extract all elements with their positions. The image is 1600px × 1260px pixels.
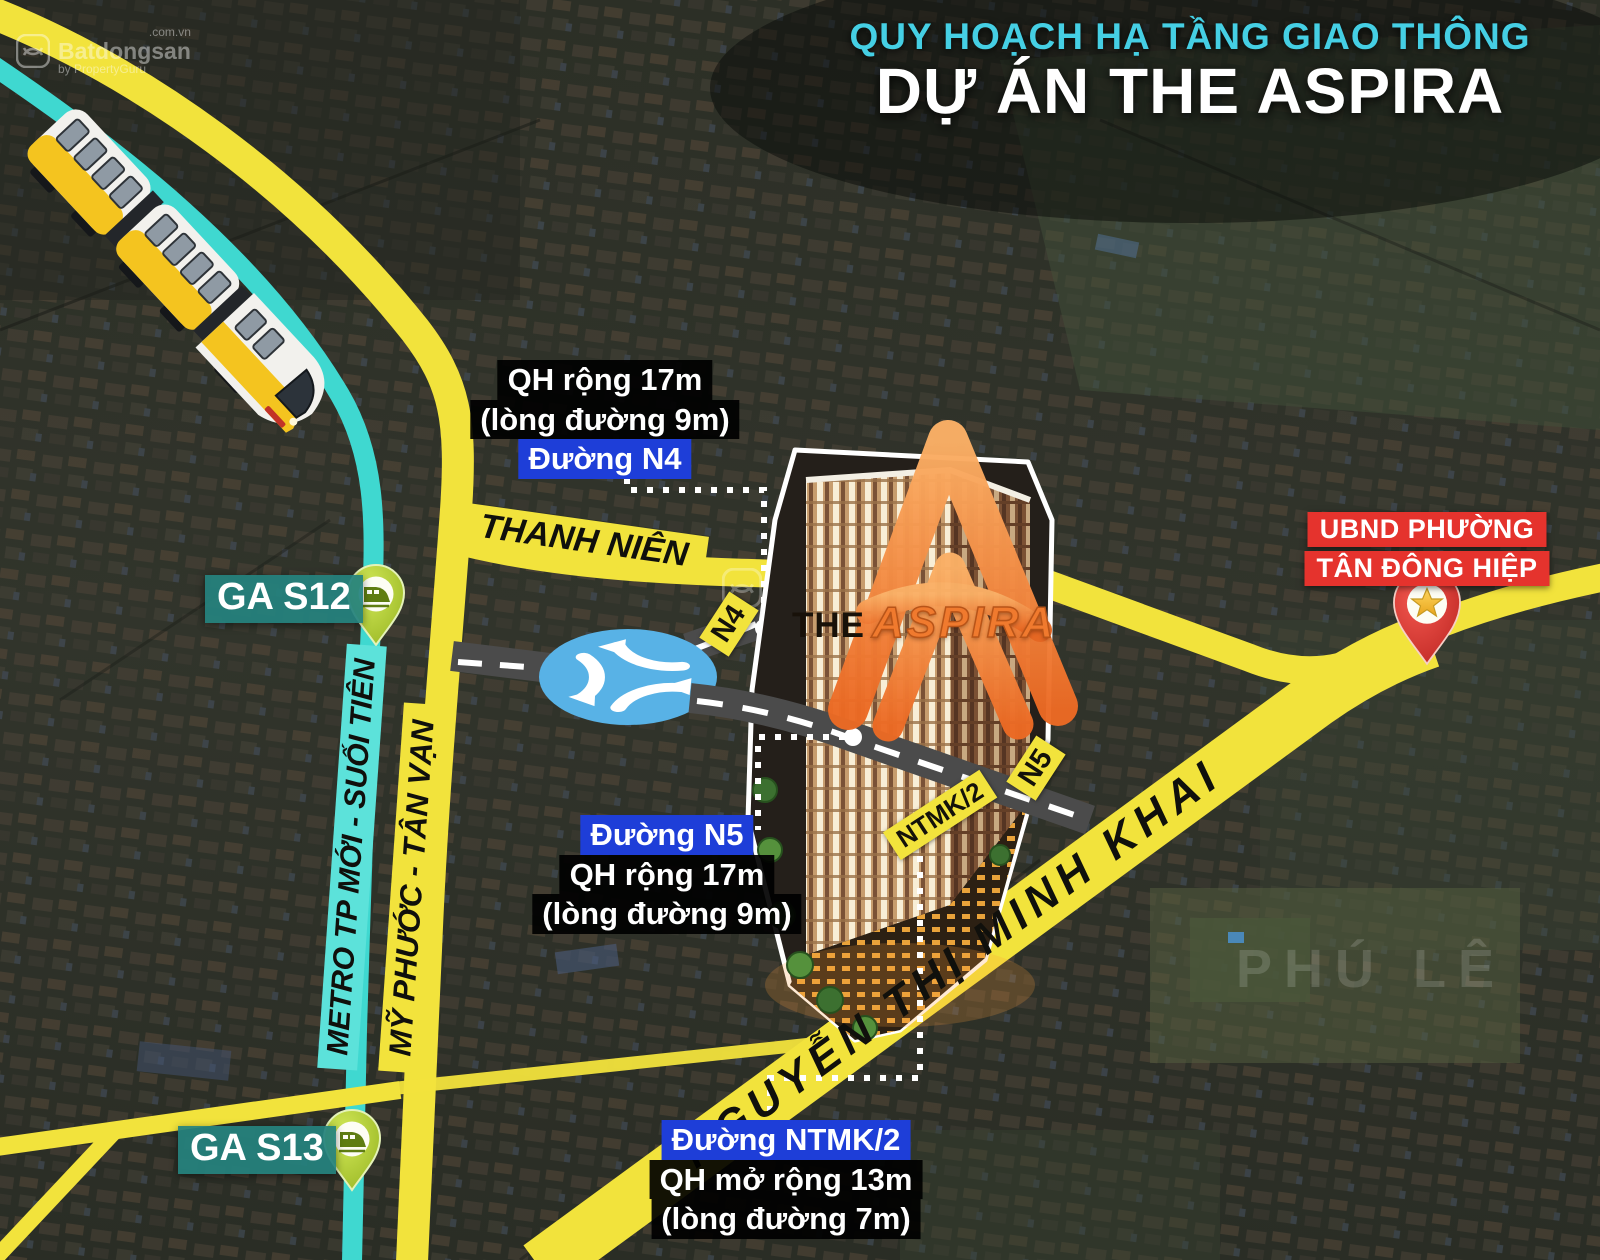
callout-n5-road: Đường N5 — [581, 815, 754, 855]
callout-n4: QH rộng 17m (lòng đường 9m) Đường N4 — [470, 360, 739, 479]
title-line1: QUY HOẠCH HẠ TẦNG GIAO THÔNG — [800, 16, 1580, 58]
callout-ntmk2: Đường NTMK/2 QH mở rộng 13m (lòng đường … — [650, 1120, 923, 1239]
road-label-thanh-nien: THANH NIÊN — [459, 503, 708, 580]
callout-n5: Đường N5 QH rộng 17m (lòng đường 9m) — [532, 815, 801, 934]
road-tag-n4: N4 — [699, 591, 758, 656]
callout-n5-lane: (lòng đường 9m) — [532, 894, 801, 934]
road-label-my-phuoc-tan-van: MỸ PHƯỚC - TÂN VẠN — [378, 703, 446, 1074]
road-tag-n5: N5 — [1006, 735, 1065, 800]
callout-ntmk2-width: QH mở rộng 13m — [650, 1160, 923, 1200]
aspira-wordmark: THE ASPIRA — [792, 598, 1056, 648]
callout-ntmk2-lane: (lòng đường 7m) — [651, 1199, 920, 1239]
callout-n4-lane: (lòng đường 9m) — [470, 400, 739, 440]
title-line2: DỰ ÁN THE ASPIRA — [800, 58, 1580, 125]
callout-n4-width: QH rộng 17m — [498, 360, 713, 400]
station-label-ga-s12: GA S12 — [205, 575, 363, 623]
callout-ntmk2-road: Đường NTMK/2 — [662, 1120, 911, 1160]
metro-line-label: METRO TP MỚI - SUỐI TIÊN — [317, 643, 387, 1070]
wordmark-aspira: ASPIRA — [872, 598, 1056, 648]
corner-watermark: PHÚ LÊ — [1236, 938, 1506, 1000]
road-tag-ntmk2: NTMK/2 — [883, 770, 997, 860]
page-title: QUY HOẠCH HẠ TẦNG GIAO THÔNG DỰ ÁN THE A… — [800, 16, 1580, 125]
ubnd-line1: UBND PHƯỜNG — [1308, 512, 1546, 547]
station-label-ga-s13: GA S13 — [178, 1126, 336, 1174]
map-infographic: .com.vn Batdongsan by PropertyGuru Batdo… — [0, 0, 1600, 1260]
labels-layer: QUY HOẠCH HẠ TẦNG GIAO THÔNG DỰ ÁN THE A… — [0, 0, 1600, 1260]
callout-n5-width: QH rộng 17m — [560, 855, 775, 895]
wordmark-the: THE — [792, 606, 865, 646]
ubnd-label: UBND PHƯỜNG TÂN ĐÔNG HIỆP — [1304, 512, 1549, 586]
callout-n4-road: Đường N4 — [519, 439, 692, 479]
ubnd-line2: TÂN ĐÔNG HIỆP — [1304, 551, 1549, 586]
